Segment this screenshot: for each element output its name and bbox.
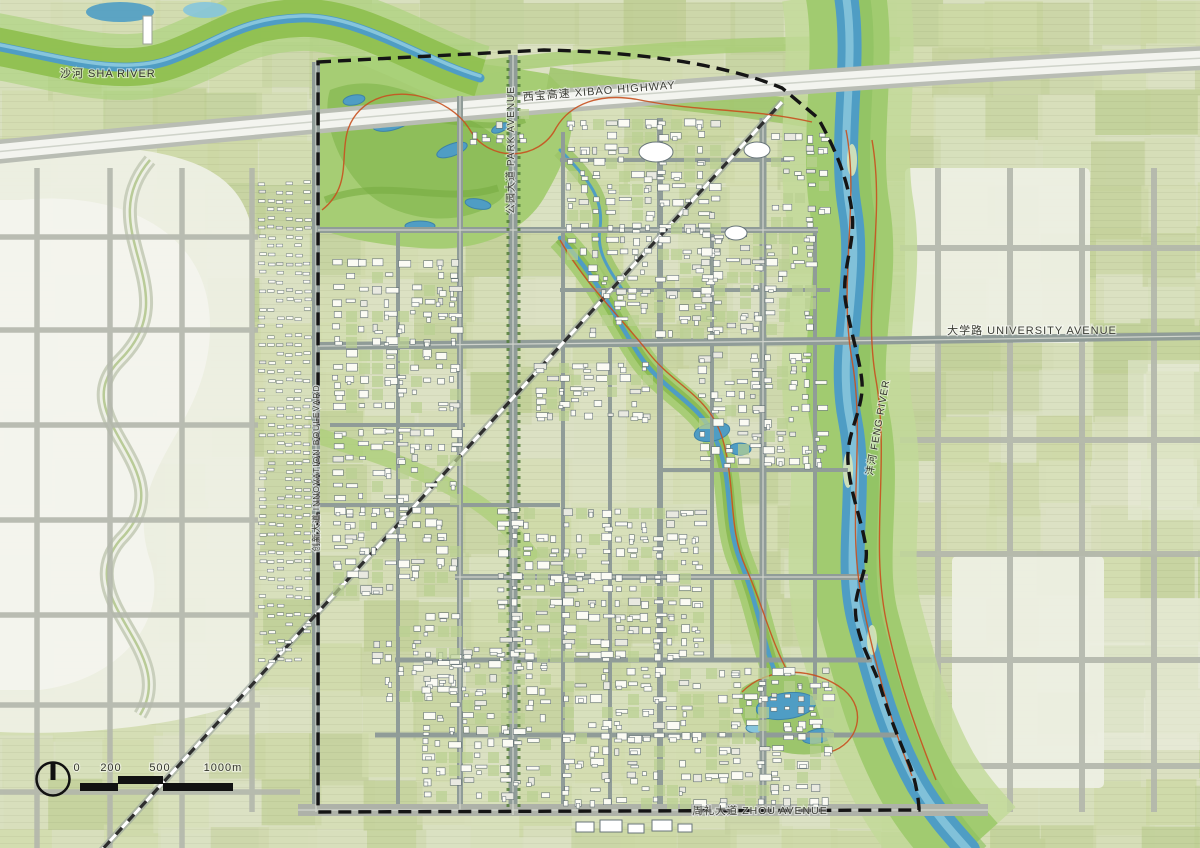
label-innovation-boulevard: 创新大道 INNOVATION BOULEVARD: [311, 384, 321, 551]
scale-tick-500: 500: [149, 762, 170, 774]
label-university-avenue: 大学路 UNIVERSITY AVENUE: [947, 323, 1117, 337]
monument-marker: [143, 16, 152, 44]
label-sha-river: 沙河 SHA RIVER: [60, 67, 156, 80]
label-park-avenue: 公园大道 PARK AVENUE: [504, 86, 517, 214]
label-zhou-avenue: 周礼大道 ZHOU AVENUE: [692, 804, 827, 817]
north-arrow-needle: [51, 762, 56, 780]
scale-tick-1000: 1000m: [204, 762, 243, 774]
map-canvas: 沙河 SHA RIVER 西宝高速 XIBAO HIGHWAY 公园大道 PAR…: [0, 0, 1200, 848]
master-plan-map: 沙河 SHA RIVER 西宝高速 XIBAO HIGHWAY 公园大道 PAR…: [0, 0, 1200, 848]
scale-tick-0: 0: [73, 762, 80, 774]
scale-tick-200: 200: [100, 762, 121, 774]
